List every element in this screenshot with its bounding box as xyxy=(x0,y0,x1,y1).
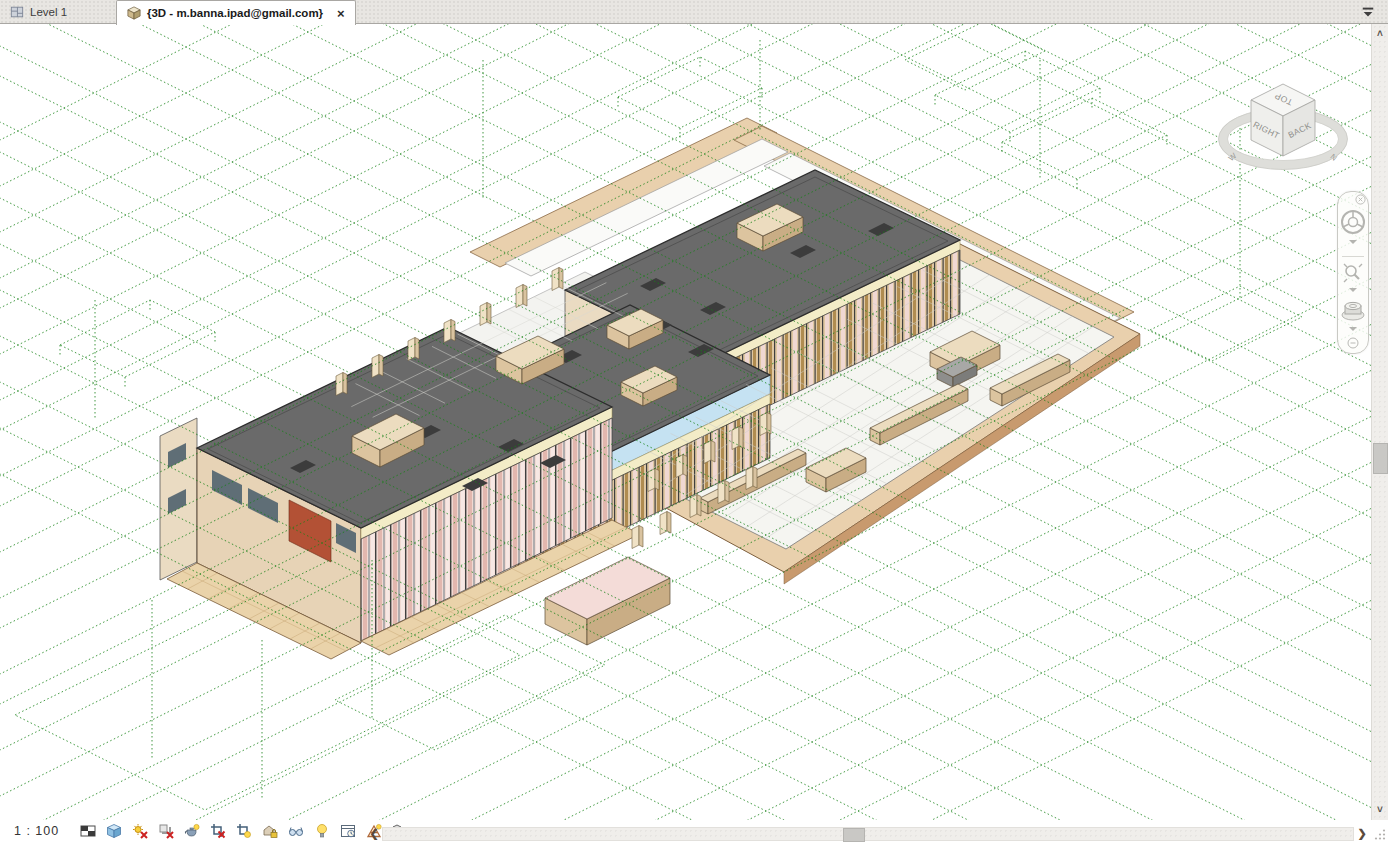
floor-plan-icon xyxy=(10,5,24,19)
column xyxy=(451,320,455,342)
column xyxy=(739,427,743,449)
reveal-hidden-elements-button[interactable] xyxy=(314,823,330,839)
crop-view-off-icon xyxy=(210,823,226,839)
orbit-menu-chevron-down-icon[interactable] xyxy=(1348,326,1358,332)
view-tab-label: {3D - m.banna.ipad@gmail.com} xyxy=(147,7,323,19)
column xyxy=(372,355,379,378)
column xyxy=(523,285,527,307)
column xyxy=(415,338,419,360)
column xyxy=(655,469,659,491)
column xyxy=(753,467,757,489)
wheel-puck-icon[interactable] xyxy=(1340,298,1366,324)
detail-level-button[interactable] xyxy=(80,823,96,839)
3d-view-icon xyxy=(127,6,141,20)
show-rendering-dialog-icon xyxy=(184,823,200,839)
detail-level-icon xyxy=(80,823,96,839)
navigation-bar xyxy=(1337,191,1369,354)
steering-wheel-menu-chevron-down-icon[interactable] xyxy=(1348,239,1358,245)
minus-circle-icon[interactable] xyxy=(1347,337,1359,349)
view-tab-label: Level 1 xyxy=(30,6,67,18)
unlocked-3d-view-button[interactable] xyxy=(262,823,278,839)
wireframe-box xyxy=(60,300,215,377)
scroll-down-arrow[interactable]: ˅ xyxy=(1372,802,1388,818)
resize-grip-icon[interactable] xyxy=(1374,828,1386,840)
sun-path-off-button[interactable] xyxy=(132,823,148,839)
column xyxy=(444,320,451,343)
show-crop-region-icon xyxy=(236,823,252,839)
column xyxy=(516,285,523,308)
column xyxy=(559,268,563,290)
tab-list-icon[interactable] xyxy=(1360,5,1376,19)
wireframe-box xyxy=(935,51,1100,132)
crop-view-off-button[interactable] xyxy=(210,823,226,839)
horizontal-scroll-track[interactable] xyxy=(382,827,1354,841)
column xyxy=(343,373,347,395)
temporary-view-properties-icon xyxy=(340,823,356,839)
view-tab-0[interactable]: Level 1 xyxy=(0,0,116,23)
viewcube[interactable]: W N TOP RIGHT BACK xyxy=(1219,84,1348,170)
view-tab-1[interactable]: {3D - m.banna.ipad@gmail.com}× xyxy=(116,0,356,25)
vertical-scrollbar[interactable]: ˄ ˅ xyxy=(1371,24,1388,820)
column xyxy=(667,512,671,534)
scroll-left-arrow[interactable]: ❮ xyxy=(366,827,382,841)
vertical-scroll-thumb[interactable] xyxy=(1373,443,1388,474)
view-control-bar: 1 : 100 ❮ ❯ xyxy=(0,820,1388,842)
column xyxy=(725,481,729,503)
temporary-hide-isolate-icon xyxy=(288,823,304,839)
horizontal-scrollbar[interactable]: ❮ ❯ xyxy=(366,827,1370,841)
navbar-divider xyxy=(1342,256,1364,257)
close-circle-icon[interactable] xyxy=(1355,194,1366,205)
wireframe-box xyxy=(1150,286,1302,361)
column xyxy=(639,526,643,548)
tab-close-icon[interactable]: × xyxy=(337,7,345,20)
3d-model-view[interactable]: W N TOP RIGHT BACK xyxy=(0,0,1388,842)
sun-path-off-icon xyxy=(132,823,148,839)
visual-style-button[interactable] xyxy=(106,823,122,839)
column xyxy=(746,467,753,490)
column xyxy=(760,413,767,436)
zoom-menu-chevron-down-icon[interactable] xyxy=(1348,287,1358,293)
reveal-hidden-elements-icon xyxy=(314,823,330,839)
column xyxy=(697,495,701,517)
column xyxy=(336,373,343,396)
scale-button[interactable]: 1 : 100 xyxy=(14,824,59,838)
column xyxy=(408,338,415,361)
view-tab-bar: Level 1{3D - m.banna.ipad@gmail.com}× xyxy=(0,0,1388,24)
wireframe-box xyxy=(905,21,1045,90)
unlocked-3d-view-icon xyxy=(262,823,278,839)
shadows-off-icon xyxy=(158,823,174,839)
scroll-up-arrow[interactable]: ˄ xyxy=(1372,26,1388,42)
column xyxy=(648,469,655,492)
visual-style-icon xyxy=(106,823,122,839)
column xyxy=(711,441,715,463)
temporary-hide-isolate-button[interactable] xyxy=(288,823,304,839)
horizontal-scroll-thumb[interactable] xyxy=(843,828,865,842)
wireframe-box xyxy=(618,57,762,128)
column xyxy=(480,303,487,326)
column xyxy=(379,355,383,377)
column xyxy=(718,481,725,504)
show-crop-region-button[interactable] xyxy=(236,823,252,839)
zoom-icon[interactable] xyxy=(1342,262,1364,284)
wireframe-box xyxy=(1002,98,1167,179)
column xyxy=(690,495,697,518)
column xyxy=(632,526,639,549)
steering-wheel-icon[interactable] xyxy=(1339,208,1367,236)
shadows-off-button[interactable] xyxy=(158,823,174,839)
scroll-right-arrow[interactable]: ❯ xyxy=(1354,827,1370,841)
temporary-view-properties-button[interactable] xyxy=(340,823,356,839)
show-rendering-dialog-button[interactable] xyxy=(184,823,200,839)
